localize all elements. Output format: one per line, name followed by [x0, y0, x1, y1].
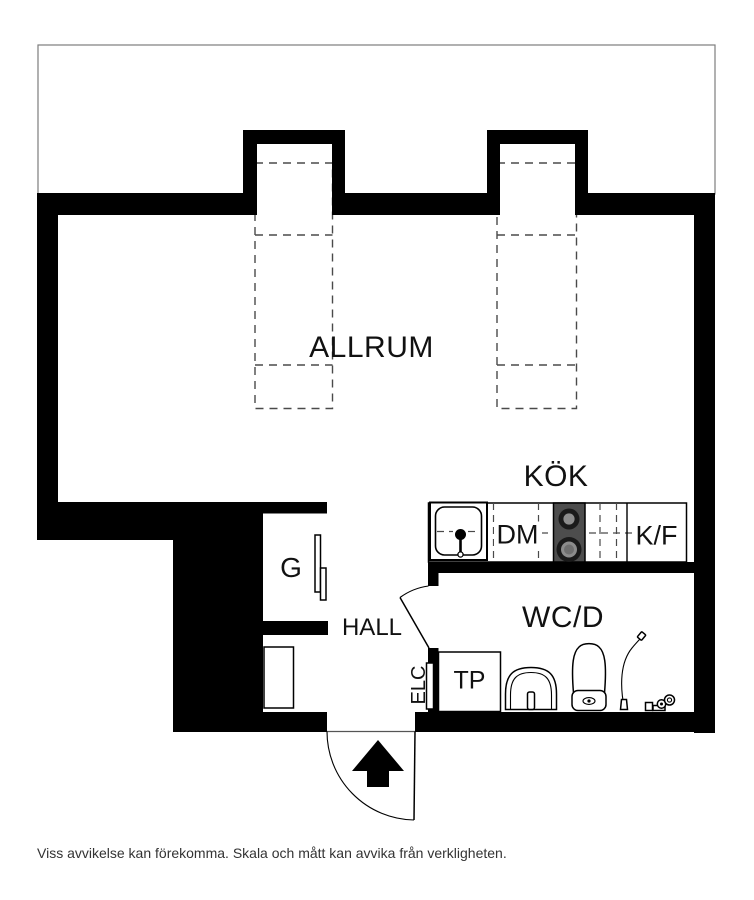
- closet-label-g: G: [280, 554, 302, 582]
- floorplan-drawing: [0, 0, 754, 900]
- kitchen-sink: [430, 503, 487, 561]
- toilet: [572, 644, 606, 711]
- terrace-outline: [38, 45, 715, 194]
- room-label-kok: KÖK: [524, 462, 589, 492]
- fixture-label-dm: DM: [494, 522, 542, 549]
- hall-wardrobe: [264, 647, 294, 708]
- fixture-label-elc: ELC: [409, 666, 429, 705]
- floorplan-page: ALLRUM KÖK HALL WC/D G DM K/F TP ELC Vis…: [0, 0, 754, 900]
- disclaimer-text: Viss avvikelse kan förekomma. Skala och …: [37, 845, 507, 861]
- fixture-label-kf: K/F: [632, 523, 680, 550]
- walls: [37, 130, 715, 733]
- wcd-door-swing: [400, 586, 429, 648]
- bathroom-sink: [506, 668, 557, 710]
- g-closet-doors: [315, 535, 326, 600]
- entrance-arrow-icon: [352, 740, 404, 787]
- floor-fixtures: [646, 695, 675, 711]
- stove: [554, 503, 586, 562]
- room-label-allrum: ALLRUM: [309, 333, 434, 363]
- room-label-hall: HALL: [342, 616, 402, 640]
- shower: [621, 632, 646, 710]
- fixture-label-tp: TP: [454, 669, 486, 694]
- room-label-wcd: WC/D: [522, 603, 604, 633]
